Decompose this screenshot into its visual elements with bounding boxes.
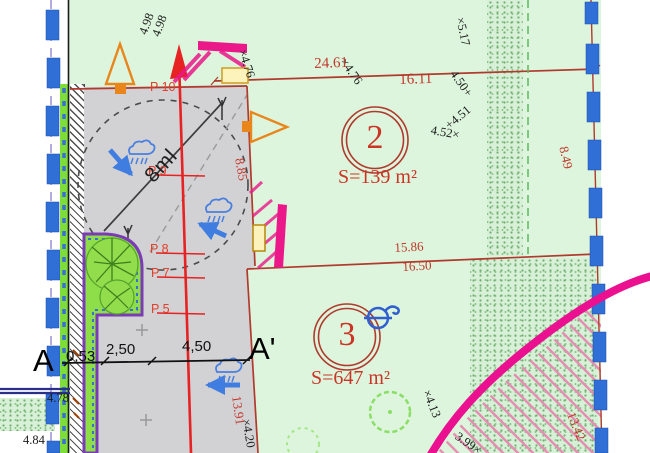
plan-drawing [0, 0, 650, 453]
site-plan-canvas: 4.98 4.98 ×4.76 ×4.76 4.50+ +4.51 4.52× … [0, 0, 650, 453]
parcel-2-circle-inner [347, 112, 404, 169]
boundary-marker [47, 154, 60, 184]
bush-symbols [287, 392, 410, 453]
bush-icon [287, 428, 319, 453]
boundary-marker [47, 58, 60, 88]
boundary-marker [586, 44, 599, 74]
structure-mid [250, 182, 287, 268]
boundary-marker [590, 236, 603, 266]
boundary-marker [587, 92, 600, 122]
boundary-marker [595, 428, 608, 453]
boundary-marker [585, 2, 598, 24]
parcel2-3-boundary [247, 254, 597, 269]
station-base [115, 84, 126, 94]
parcel-2-circle [342, 107, 408, 173]
bush-center [388, 410, 392, 414]
triangle-station-icon [106, 44, 134, 84]
road-edge-curve [430, 276, 650, 453]
boundary-marker [593, 332, 606, 362]
structure-yellow-element [253, 225, 265, 251]
boundary-marker [47, 250, 60, 280]
structure-wall [274, 204, 287, 268]
boundary-marker [46, 202, 59, 232]
streetlight-icon [364, 307, 399, 328]
boundary-marker [46, 106, 59, 136]
structure-yellow-element [222, 68, 248, 83]
north-dimension-line [214, 69, 597, 81]
boundary-marker [589, 188, 602, 218]
boundary-marker [47, 346, 60, 376]
utility-double-line [0, 389, 70, 393]
boundary-marker [47, 441, 60, 453]
wall-tick-marks [73, 350, 79, 418]
left-boundary-markers [46, 10, 60, 453]
boundary-marker [588, 140, 601, 170]
boundary-marker [46, 298, 59, 328]
boundary-marker [46, 394, 59, 424]
boundary-marker [46, 10, 59, 40]
boundary-marker [594, 380, 607, 410]
parcel-number-circles [314, 107, 408, 370]
station-base [242, 121, 252, 132]
triangle-station-icon [251, 112, 287, 142]
green-verge-strip [60, 84, 68, 453]
structure-top [174, 41, 248, 83]
